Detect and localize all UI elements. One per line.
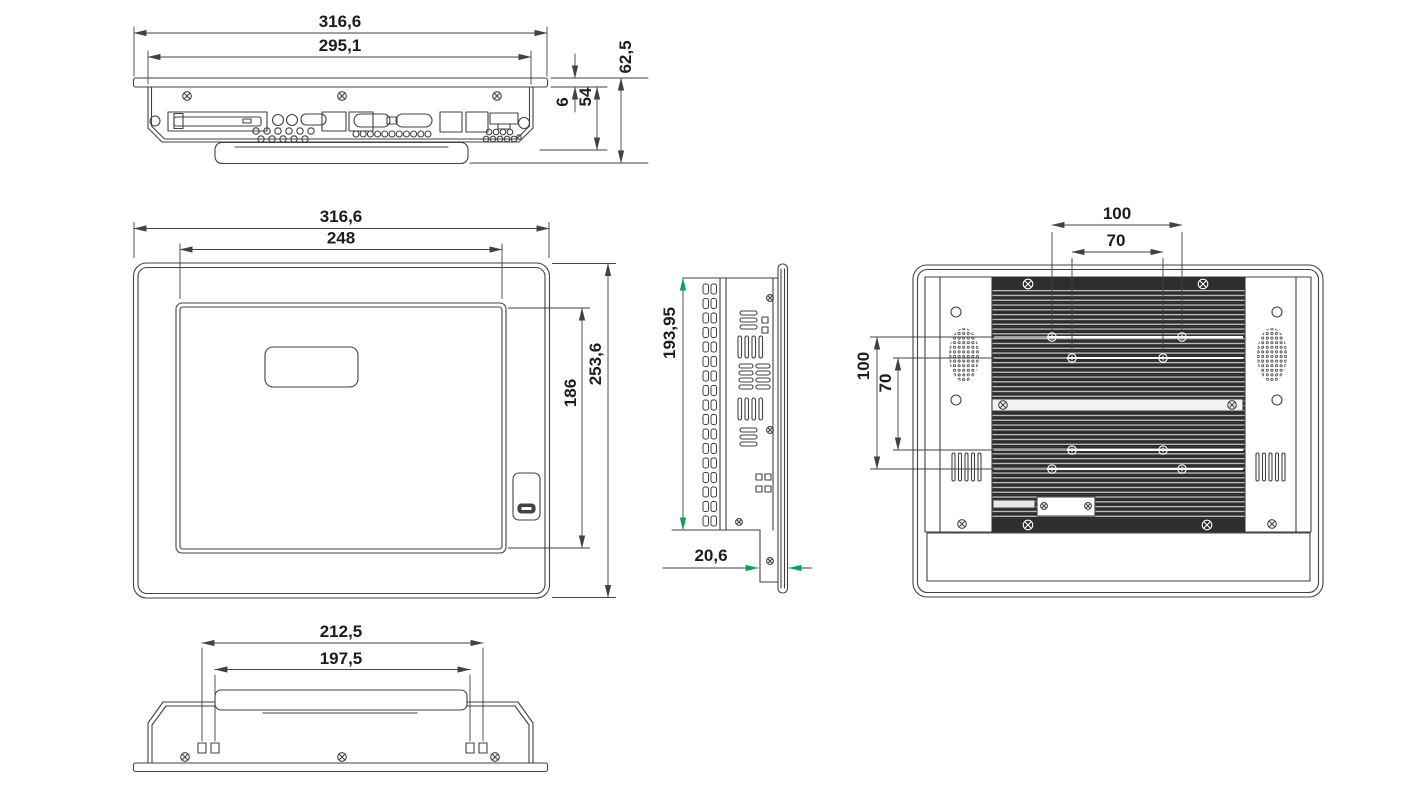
mounting-rail bbox=[215, 690, 467, 710]
dim-vesa-width-70: 70 bbox=[1107, 231, 1126, 250]
dim-mount-depth: 20,6 bbox=[694, 546, 727, 565]
speaker-grille-left bbox=[949, 328, 979, 382]
dim-chassis-depth: 54 bbox=[576, 87, 595, 106]
dim-bezel-depth: 6 bbox=[553, 97, 572, 106]
dim-display-height: 186 bbox=[561, 379, 580, 407]
dim-clamp-outer: 212,5 bbox=[320, 622, 363, 641]
vent-holes bbox=[253, 128, 314, 142]
side-screws bbox=[736, 295, 774, 565]
antenna-hole bbox=[519, 118, 530, 129]
rear-device bbox=[913, 265, 1323, 597]
bottom-chassis-outline bbox=[148, 702, 533, 763]
rear-view: 100 70 100 70 bbox=[854, 204, 1323, 597]
bottom-device bbox=[134, 690, 548, 772]
bottom-dimensions: 212,5 197,5 bbox=[202, 622, 483, 741]
dim-cutout-height: 193,95 bbox=[660, 307, 679, 359]
front-view: 316,6 248 186 253,6 bbox=[134, 207, 617, 598]
bottom-chassis-inner bbox=[152, 706, 529, 763]
top-device bbox=[134, 78, 548, 164]
mounting-bar bbox=[992, 399, 1243, 411]
mounting-step bbox=[760, 530, 778, 582]
side-vents bbox=[738, 311, 771, 492]
side-device bbox=[672, 264, 788, 593]
io-panel bbox=[150, 112, 530, 142]
front-bezel-lip bbox=[134, 78, 548, 87]
dim-total-depth: 62,5 bbox=[616, 40, 635, 73]
logo-plate bbox=[265, 347, 358, 387]
serial-screw-holes bbox=[353, 131, 431, 137]
lan-port bbox=[349, 112, 373, 131]
chassis-screws bbox=[183, 92, 502, 101]
clamp-slots bbox=[198, 743, 487, 753]
front-usb-cover bbox=[513, 473, 540, 520]
front-device bbox=[134, 263, 550, 598]
audio-jack bbox=[273, 115, 284, 126]
usb-port bbox=[466, 112, 488, 132]
front-bezel-side bbox=[778, 264, 788, 593]
front-frame-outer bbox=[134, 263, 550, 598]
usb-port bbox=[440, 112, 462, 132]
panel-pc-drawing: 316,6 295,1 6 54 62,5 bbox=[0, 0, 1414, 787]
top-view: 316,6 295,1 6 54 62,5 bbox=[134, 12, 649, 164]
vent-slots-right bbox=[1256, 453, 1285, 481]
display-active-area bbox=[180, 307, 502, 549]
dim-clamp-inner: 197,5 bbox=[320, 649, 363, 668]
rear-cover-bar bbox=[215, 143, 468, 164]
bottom-view: 212,5 197,5 bbox=[134, 622, 548, 772]
rear-left-panel bbox=[949, 307, 981, 528]
dim-overall-width: 316,6 bbox=[319, 12, 362, 31]
serial-ports bbox=[354, 114, 432, 127]
rear-right-panel bbox=[1256, 307, 1287, 528]
display-opening bbox=[176, 303, 506, 553]
heatsink-fins-side bbox=[702, 282, 719, 528]
dim-vesa-width-100: 100 bbox=[1103, 204, 1131, 223]
bottom-tray bbox=[927, 533, 1310, 581]
side-view: 193,95 20,6 bbox=[660, 264, 812, 593]
dim-display-width: 248 bbox=[327, 229, 355, 248]
card-slot bbox=[168, 112, 267, 131]
dim-cutout-width: 295,1 bbox=[319, 36, 362, 55]
audio-jack bbox=[287, 115, 298, 126]
front-bezel-lip-bottom bbox=[134, 763, 548, 772]
dim-vesa-height-70: 70 bbox=[876, 374, 895, 393]
dim-front-height: 253,6 bbox=[586, 343, 605, 386]
vent-slots-left bbox=[952, 453, 981, 481]
dim-front-width: 316,6 bbox=[320, 207, 363, 226]
technical-drawing-page: 316,6 295,1 6 54 62,5 bbox=[0, 0, 1414, 787]
front-frame-inner bbox=[138, 268, 545, 594]
bottom-screws bbox=[181, 753, 500, 762]
speaker-grille-right bbox=[1257, 328, 1287, 382]
dim-vesa-height-100: 100 bbox=[854, 352, 873, 380]
power-terminal bbox=[490, 113, 518, 129]
heatsink bbox=[992, 277, 1245, 532]
